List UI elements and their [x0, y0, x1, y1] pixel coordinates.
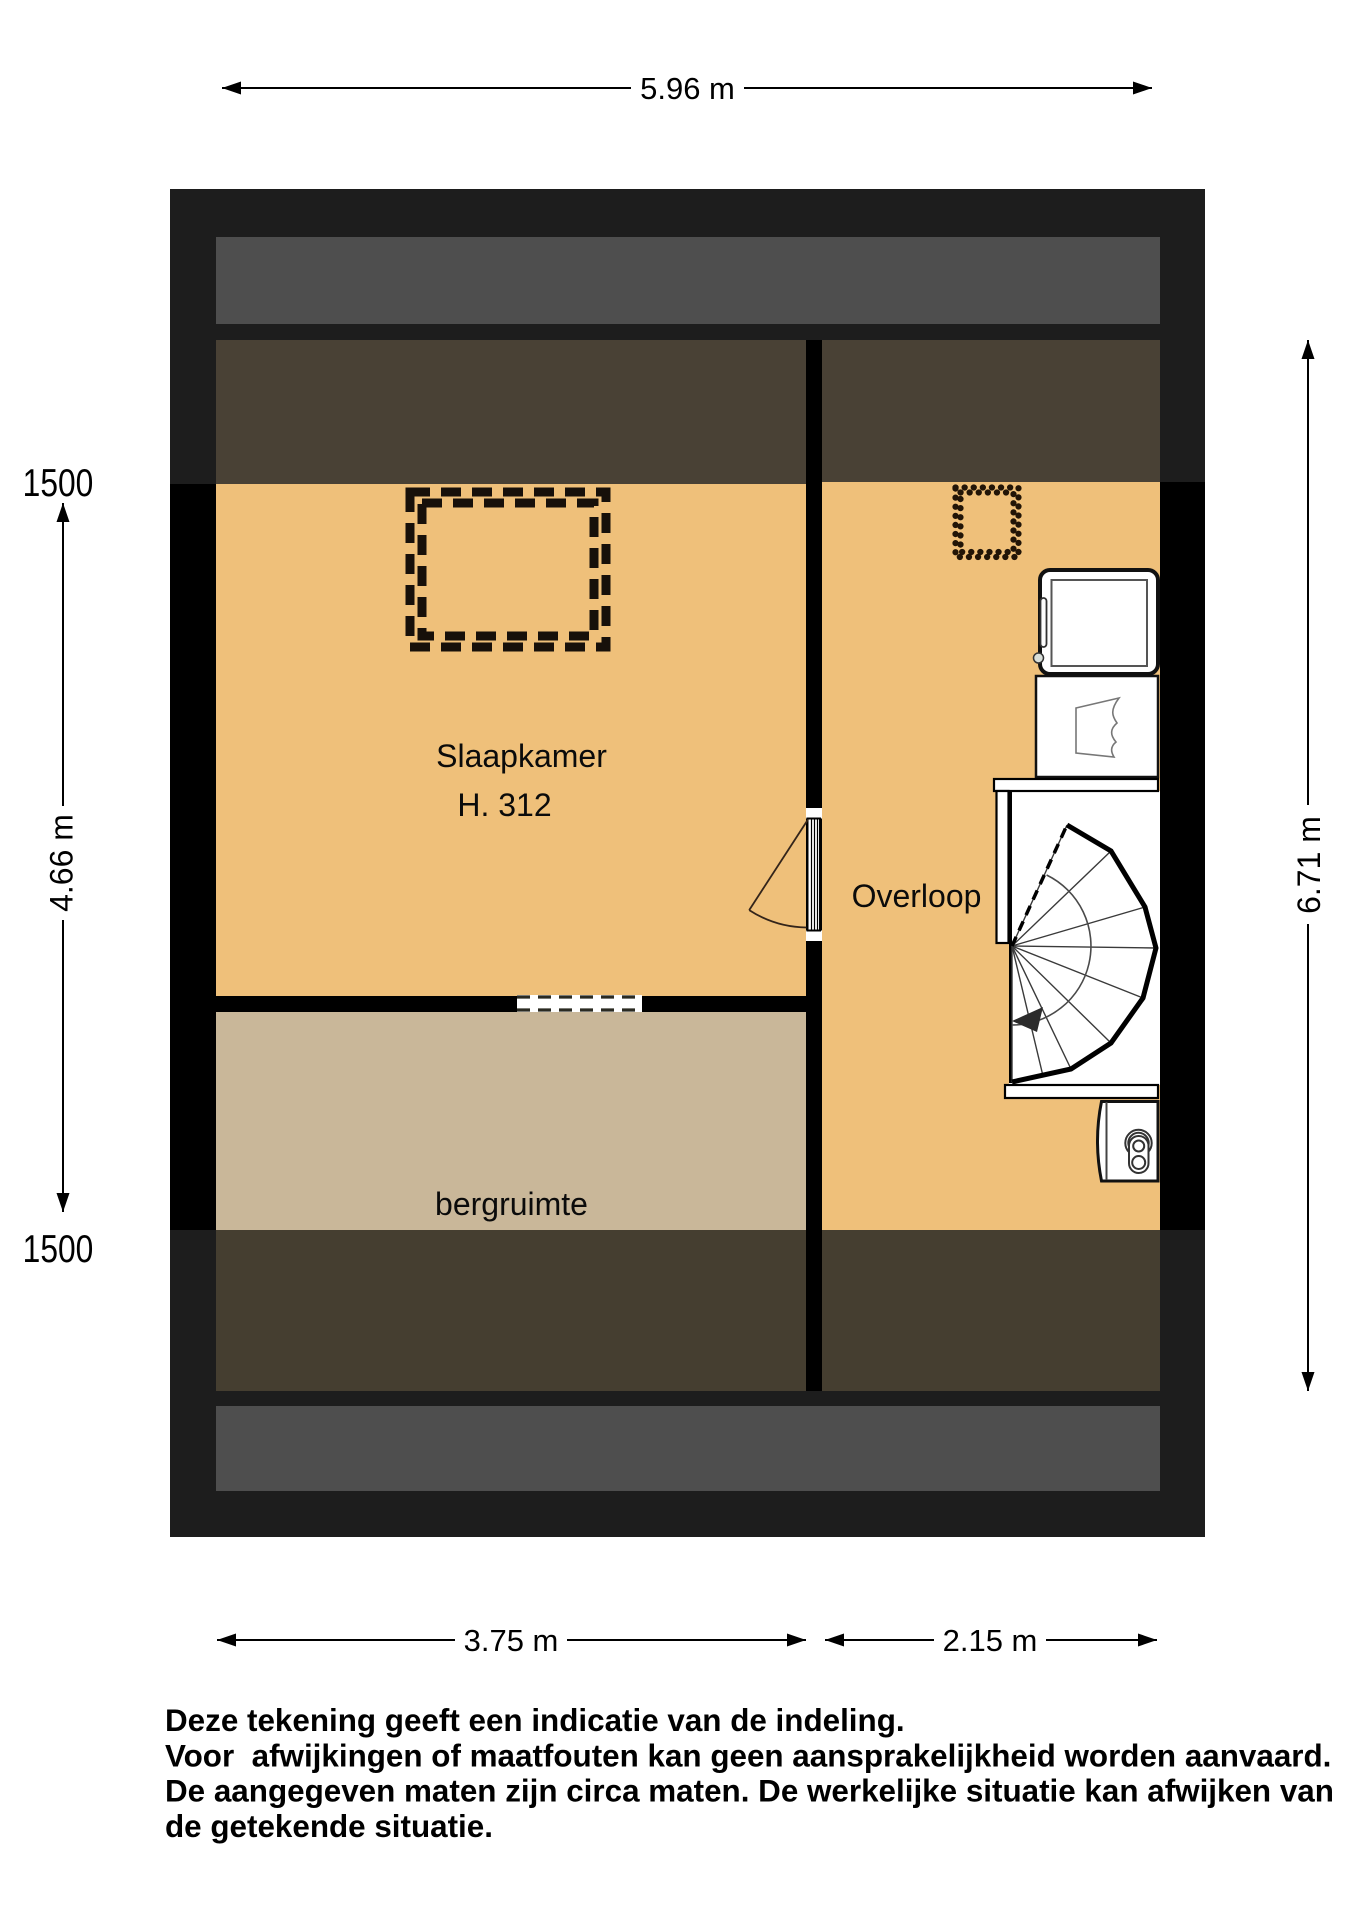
svg-text:De aangegeven maten zijn circa: De aangegeven maten zijn circa maten. De… [165, 1774, 1334, 1809]
svg-text:de getekende situatie.: de getekende situatie. [165, 1809, 493, 1844]
svg-text:4.66 m: 4.66 m [44, 814, 80, 912]
svg-text:5.96 m: 5.96 m [640, 71, 735, 106]
svg-text:bergruimte: bergruimte [435, 1186, 588, 1222]
svg-text:1500: 1500 [23, 1228, 94, 1271]
svg-text:Deze tekening geeft een indica: Deze tekening geeft een indicatie van de… [165, 1703, 905, 1738]
svg-text:H. 312: H. 312 [457, 787, 551, 823]
svg-text:2.15 m: 2.15 m [943, 1623, 1038, 1658]
svg-text:3.75 m: 3.75 m [464, 1623, 559, 1658]
svg-text:6.71 m: 6.71 m [1291, 816, 1327, 914]
svg-text:Overloop: Overloop [852, 878, 982, 914]
svg-text:1500: 1500 [23, 462, 94, 505]
svg-text:Slaapkamer: Slaapkamer [436, 738, 607, 774]
svg-text:Voor afwijkingen of maatfoute: Voor afwijkingen of maatfouten kan geen … [165, 1738, 1331, 1773]
